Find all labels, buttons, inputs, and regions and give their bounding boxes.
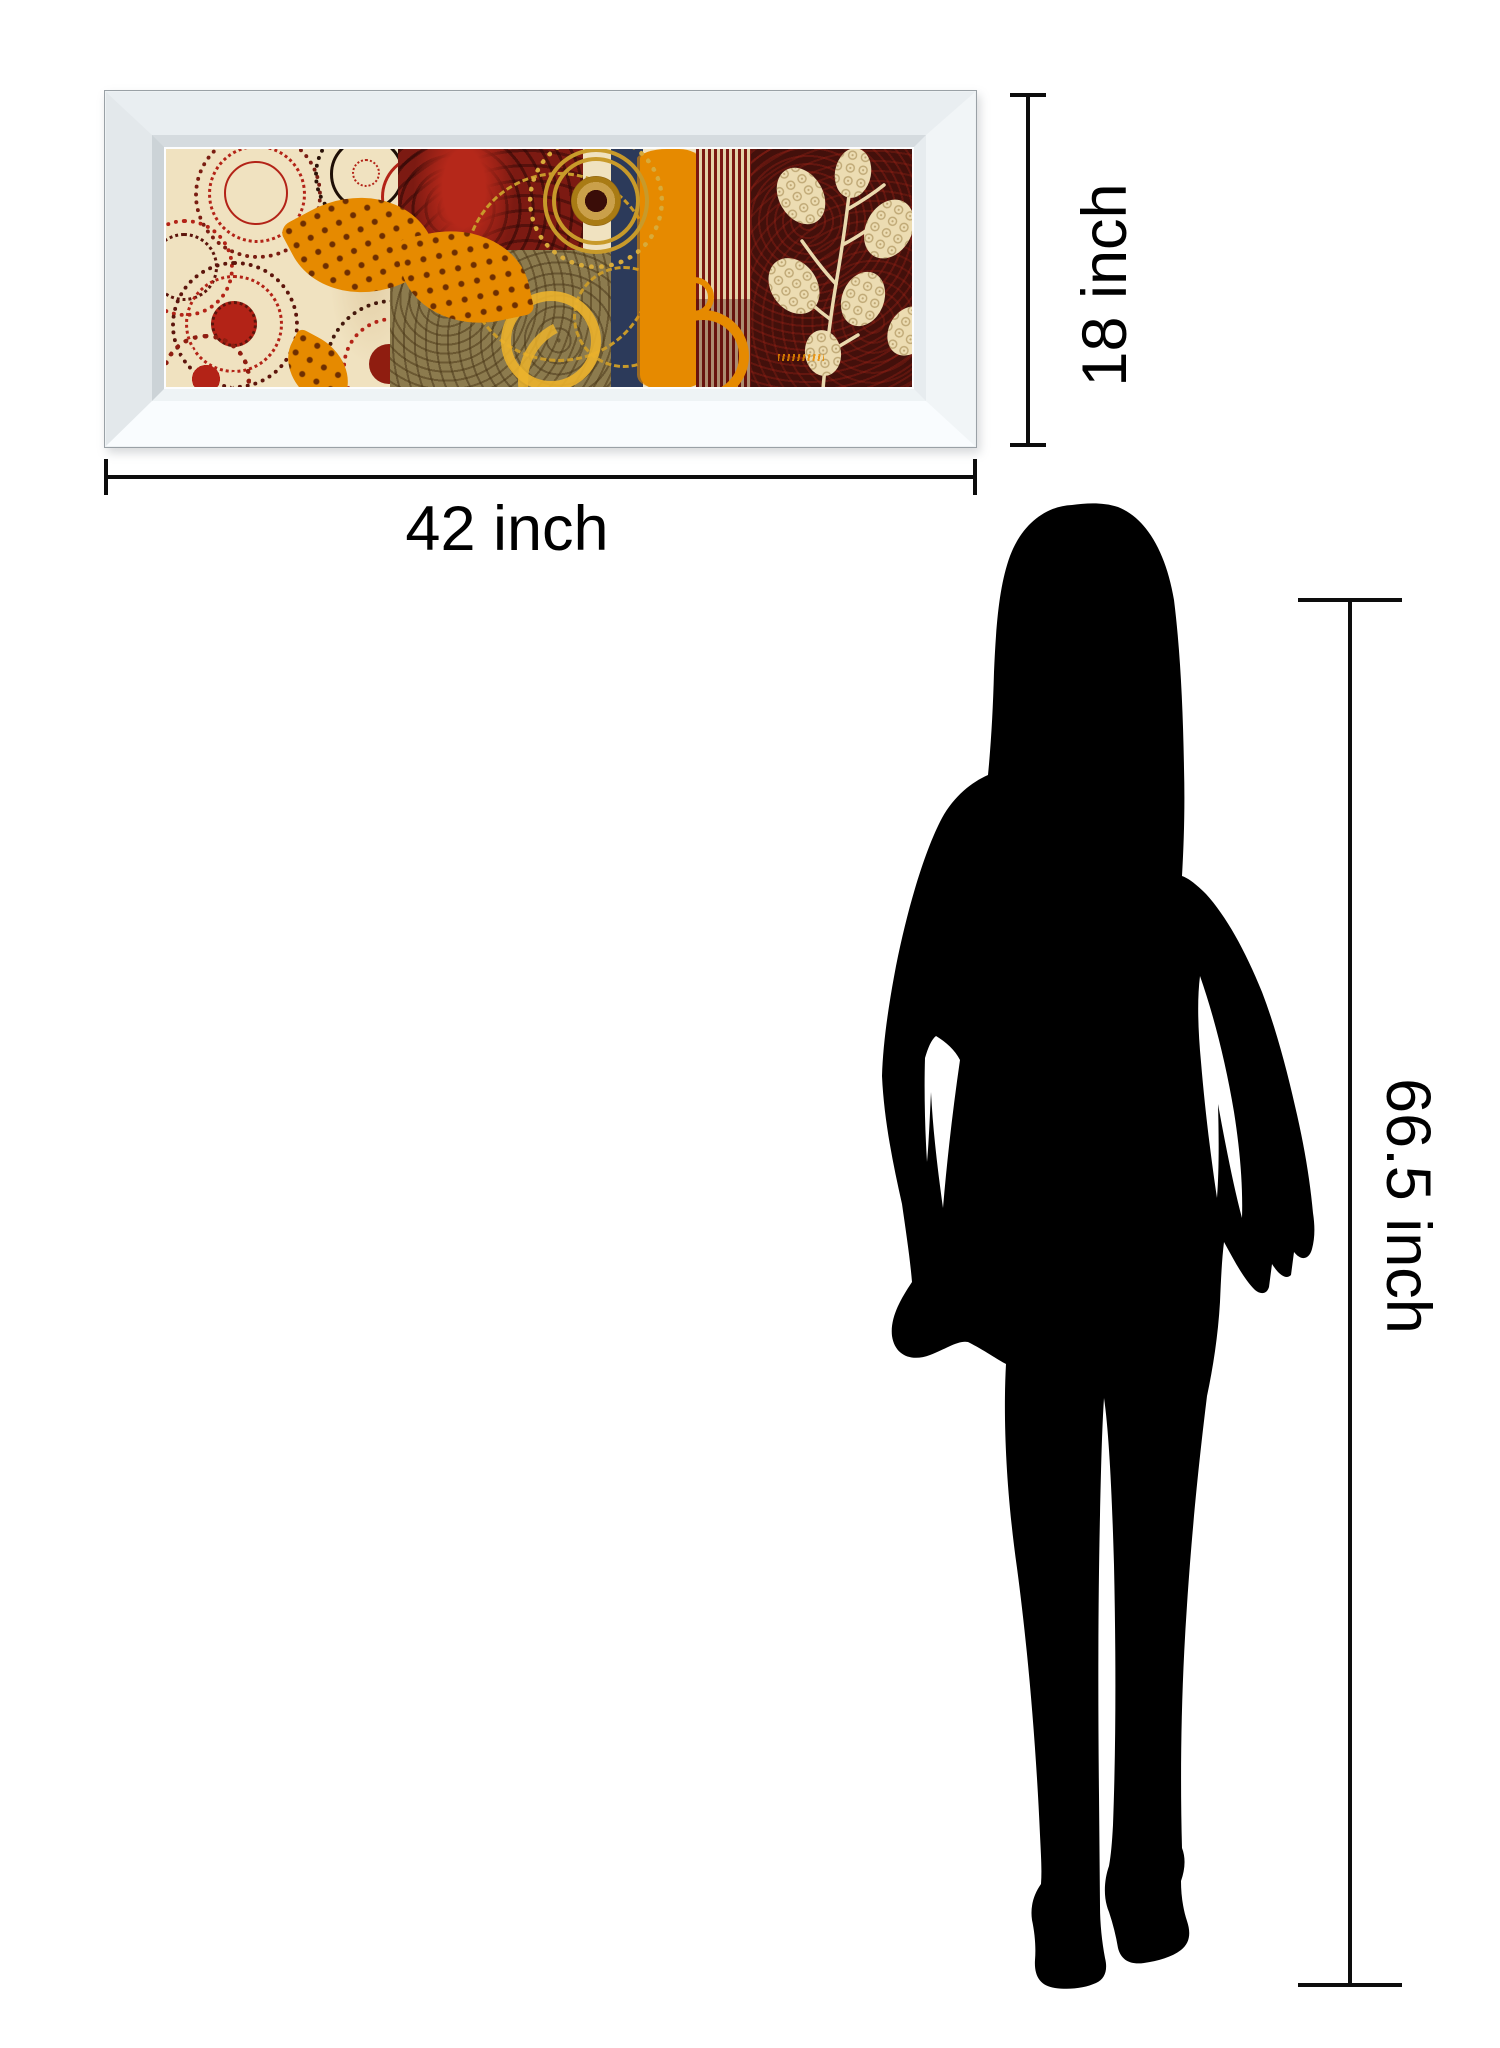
person-silhouette xyxy=(0,0,1500,2048)
woman-silhouette-path xyxy=(882,503,1314,1988)
size-comparison-diagram: 18 inch 42 inch 66.5 inch xyxy=(0,0,1500,2048)
